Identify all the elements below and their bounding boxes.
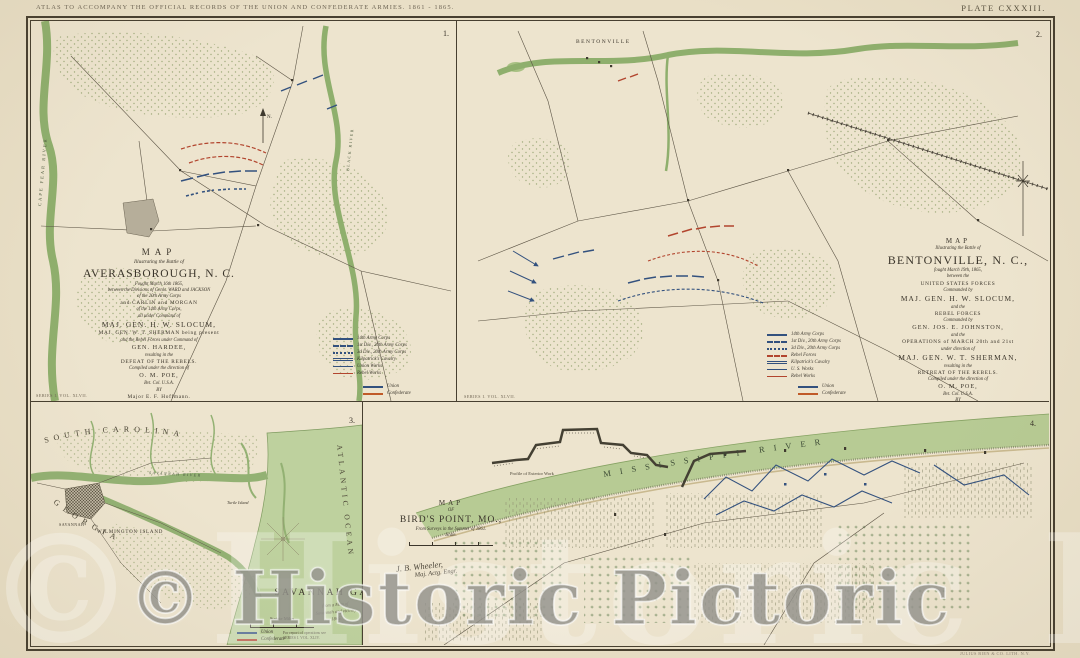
legend-label: Rebel Forces	[791, 353, 816, 358]
panel-divider-horizontal	[30, 401, 1049, 402]
legend-line-swatch	[363, 393, 383, 395]
statute-miles-block: Statute Miles	[245, 616, 319, 628]
legend-item: Confederate	[237, 636, 285, 643]
title-line: AVERASBOROUGH, N. C.	[69, 268, 249, 281]
scale-label: Scale.	[376, 533, 526, 539]
title-line: BIRD'S POINT, MO.,	[376, 515, 526, 526]
legend-line-swatch	[333, 366, 353, 367]
legend-label: Confederate	[822, 391, 846, 396]
title-line: GEN. HARDEE,	[69, 344, 249, 353]
black-river-label: BLACK RIVER	[345, 128, 354, 171]
savannah-footnote: For report of operations see SERIES I. V…	[283, 631, 362, 642]
legend-item: 14th Army Corps	[767, 331, 841, 338]
legend-item: Kilpatrick's Cavalry	[333, 356, 407, 363]
legend-label: 3d Div., 20th Army Corps	[357, 350, 406, 355]
title-line: and CARLIN and MORGAN	[69, 300, 249, 307]
lithographer-credit: JULIUS BIEN & CO. LITH. N.Y.	[960, 651, 1030, 656]
series-note-right: SERIES I. VOL. XLVII.	[464, 394, 516, 399]
legend-line-swatch	[363, 386, 383, 388]
bentonville-title-block: MAP Illustrating the Battle of BENTONVIL…	[873, 237, 1043, 401]
legend-line-swatch	[333, 352, 353, 354]
legend-line-swatch	[767, 361, 787, 364]
mill-creek	[498, 43, 1018, 73]
legend-line-swatch	[767, 355, 787, 357]
title-line: RETREAT OF THE REBELS.	[873, 370, 1043, 377]
title-line: MAP	[376, 499, 526, 507]
savannah-title: SAVANNAH GA.	[269, 588, 362, 598]
legend-item: Union	[798, 383, 846, 390]
bentonville-legend: 14th Army Corps1st Div., 20th Army Corps…	[767, 331, 841, 380]
title-line: MAJ. GEN. W. T. SHERMAN,	[873, 353, 1043, 364]
legend-label: Kilpatrick's Cavalry	[791, 360, 830, 365]
title-line: MAJ. GEN. H. W. SLOCUM,	[69, 320, 249, 331]
legend-label: 3d Div., 20th Army Corps	[791, 346, 840, 351]
legend-line-swatch	[767, 341, 787, 343]
panel-savannah: SOUTH CAROLINA GEORGIA ATLANTIC OCEAN WI…	[31, 403, 362, 645]
rebel-works-lines	[181, 143, 266, 165]
atlas-plate: ATLAS TO ACCOMPANY THE OFFICIAL RECORDS …	[0, 0, 1080, 658]
statute-miles-label: Statute Miles	[245, 616, 319, 621]
panel-number-3: 3.	[349, 416, 355, 425]
legend-line-swatch	[237, 632, 257, 634]
union-lines	[181, 171, 257, 196]
profile-label: Profile of Exterior Work	[510, 471, 555, 476]
legend-label: Union	[261, 630, 273, 635]
title-line: O. M. POE,	[69, 372, 249, 381]
panel-number-1: 1.	[443, 29, 449, 38]
title-line: OF	[376, 508, 526, 514]
averasborough-sub-legend: UnionConfederate	[363, 383, 411, 397]
scale-bar	[409, 542, 493, 546]
scale-bar	[250, 624, 314, 628]
cape-fear-river-label: CAPE FEAR RIVER	[37, 137, 48, 206]
legend-label: Confederate	[387, 391, 411, 396]
title-line: MAP	[69, 247, 249, 257]
legend-label: 14th Army Corps	[357, 336, 390, 341]
title-line: Illustrating the Battle of	[69, 259, 249, 266]
title-line: O. M. POE,	[873, 383, 1043, 392]
north-label: N.	[267, 115, 272, 120]
panel-bentonville: BENTONVILLE 2. MAP Illustrating the Batt…	[458, 21, 1049, 401]
legend-item: Kilpatrick's Cavalry	[767, 359, 841, 366]
legend-line-swatch	[333, 373, 353, 374]
series-note-left: SERIES I. VOL. XLVII.	[36, 393, 88, 398]
title-line: GEN. JOS. E. JOHNSTON,	[873, 324, 1043, 333]
creek-branch	[666, 55, 669, 171]
legend-item: Confederate	[798, 390, 846, 397]
legend-label: 14th Army Corps	[791, 332, 824, 337]
legend-label: Union Works	[357, 364, 382, 369]
title-line: MAJ. GEN. W. T. SHERMAN being present	[69, 330, 249, 337]
panel-number-4: 4.	[1030, 419, 1036, 428]
averasborough-legend: 14th Army Corps1st Div., 20th Army Corps…	[333, 335, 407, 377]
legend-item: 3d Div., 20th Army Corps	[767, 345, 841, 352]
legend-label: 1st Div., 20th Army Corps	[357, 343, 407, 348]
legend-item: Union	[363, 383, 411, 390]
legend-label: Union	[387, 384, 399, 389]
north-arrow: N.	[260, 108, 272, 143]
legend-line-swatch	[333, 338, 353, 340]
legend-item: 3d Div., 20th Army Corps	[333, 349, 407, 356]
title-line: MAP	[873, 237, 1043, 245]
compass-rose	[261, 517, 305, 561]
legend-line-swatch	[333, 345, 353, 347]
legend-line-swatch	[767, 334, 787, 336]
legend-line-swatch	[767, 369, 787, 370]
cape-fear-river	[43, 21, 56, 401]
legend-label: Kilpatrick's Cavalry	[357, 357, 396, 362]
legend-item: Union	[237, 629, 285, 636]
title-line: UNITED STATES FORCES	[873, 281, 1043, 288]
legend-label: Union	[822, 384, 834, 389]
legend-line-swatch	[798, 393, 818, 395]
panel-averasborough: N. CAPE FEAR RIVER BLACK RIVER 1. MAP Il…	[31, 21, 456, 401]
legend-line-swatch	[333, 358, 353, 361]
panel-number-2: 2.	[1036, 30, 1042, 39]
legend-line-swatch	[767, 348, 787, 350]
legend-item: Confederate	[363, 390, 411, 397]
legend-item: Union Works	[333, 363, 407, 370]
title-line: Major E. F. Hoffmann.	[69, 394, 249, 401]
legend-line-swatch	[798, 386, 818, 388]
title-line: Illustrating the Battle of	[873, 246, 1043, 252]
legend-label: Confederate	[261, 637, 285, 642]
averasborough-title-block: MAP Illustrating the Battle of AVERASBOR…	[69, 247, 249, 401]
legend-item: Rebel Works	[333, 370, 407, 377]
legend-item: U. S. Works	[767, 366, 841, 373]
bentonville-sub-legend: UnionConfederate	[798, 383, 846, 397]
footnote-line: SERIES I. VOL. XLIV.	[283, 636, 362, 641]
legend-item: 1st Div., 20th Army Corps	[767, 338, 841, 345]
savannah-city-label: SAVANNAH	[59, 522, 84, 527]
panel-divider-vertical-top	[456, 20, 457, 402]
title-line: MAJ. GEN. H. W. SLOCUM,	[873, 294, 1043, 305]
panel-divider-vertical-bottom	[362, 402, 363, 645]
title-line: DEFEAT OF THE REBELS.	[69, 359, 249, 366]
turtle-island-label: Turtle Island	[227, 500, 249, 505]
title-line: OPERATIONS of MARCH 20th and 21st	[873, 339, 1043, 346]
legend-item: 1st Div., 20th Army Corps	[333, 342, 407, 349]
town-block	[123, 199, 159, 237]
wilmington-island-label: WILMINGTON ISLAND	[97, 530, 163, 535]
birds-point-title-block: MAP OF BIRD'S POINT, MO., From Surveys i…	[376, 499, 526, 546]
legend-item: Rebel Forces	[767, 352, 841, 359]
bentonville-town-label: BENTONVILLE	[576, 39, 631, 45]
legend-item: 14th Army Corps	[333, 335, 407, 342]
atlas-header-title: ATLAS TO ACCOMPANY THE OFFICIAL RECORDS …	[36, 4, 454, 11]
savannah-legend: UnionConfederate	[237, 629, 285, 643]
plate-number-label: PLATE CXXXIII.	[961, 3, 1046, 13]
legend-line-swatch	[767, 376, 787, 377]
legend-item: Rebel Works	[767, 373, 841, 380]
legend-label: U. S. Works	[791, 367, 813, 372]
legend-label: Rebel Works	[791, 374, 815, 379]
title-line: BENTONVILLE, N. C.,	[873, 254, 1043, 267]
legend-label: Rebel Works	[357, 371, 381, 376]
legend-line-swatch	[237, 639, 257, 641]
title-line: REBEL FORCES	[873, 311, 1043, 318]
legend-label: 1st Div., 20th Army Corps	[791, 339, 841, 344]
panel-birds-point: Profile of Exterior Work MISSISSIPPI RIV…	[364, 403, 1049, 645]
